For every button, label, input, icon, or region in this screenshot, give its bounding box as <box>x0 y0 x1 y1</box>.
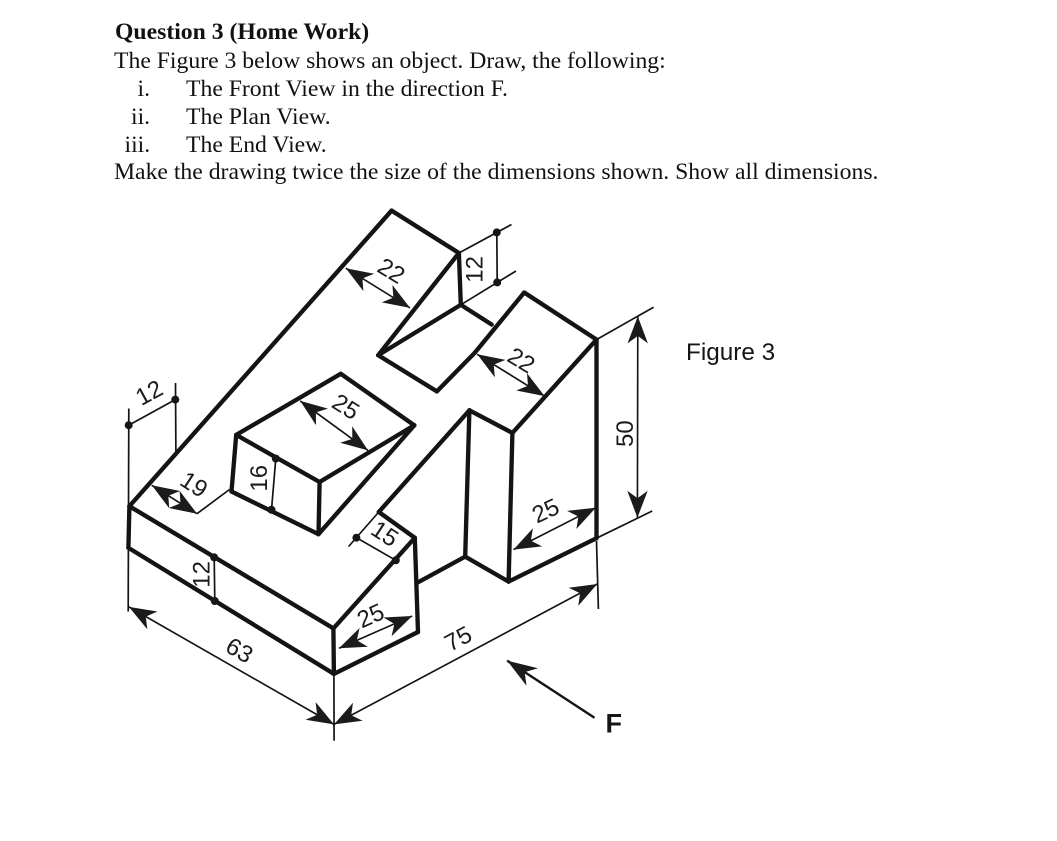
svg-text:F: F <box>606 709 623 739</box>
svg-text:50: 50 <box>612 420 639 447</box>
svg-text:63: 63 <box>221 633 258 670</box>
svg-text:12: 12 <box>462 256 489 283</box>
svg-text:25: 25 <box>327 389 364 426</box>
svg-text:12: 12 <box>188 561 215 588</box>
svg-text:25: 25 <box>528 493 564 529</box>
svg-text:22: 22 <box>373 253 410 290</box>
svg-text:16: 16 <box>246 465 273 492</box>
